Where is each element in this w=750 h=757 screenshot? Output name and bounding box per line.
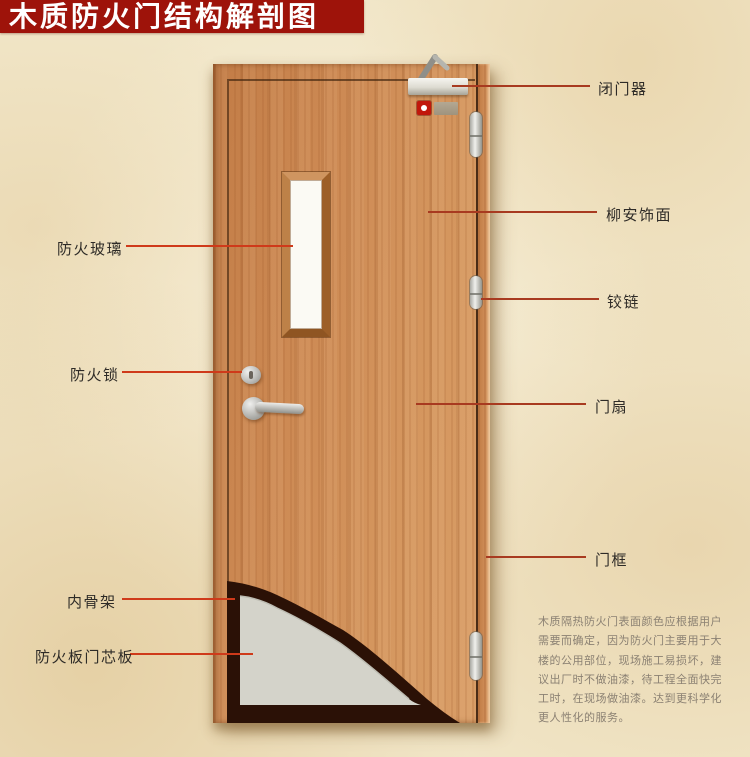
door-cutaway-section <box>213 64 490 723</box>
leader-line-inner-skeleton <box>122 598 235 600</box>
leader-line-door-frame <box>486 556 586 558</box>
fire-door-illustration <box>213 64 490 723</box>
label-door-closer: 闭门器 <box>598 78 648 99</box>
leader-line-fire-lock <box>122 371 242 373</box>
leader-line-door-closer <box>452 85 590 87</box>
fire-board-core-shape <box>240 596 421 705</box>
label-core-board: 防火板门芯板 <box>35 646 134 667</box>
title-banner: 木质防火门结构解剖图 <box>0 0 364 33</box>
label-veneer: 柳安饰面 <box>606 204 672 225</box>
leader-line-hinge <box>481 298 599 300</box>
label-fire-glass: 防火玻璃 <box>57 238 123 259</box>
page-title: 木质防火门结构解剖图 <box>0 0 364 33</box>
product-description: 木质隔热防火门表面颜色应根据用户 需要而确定，因为防火门主要用于大 楼的公用部位… <box>538 612 733 728</box>
label-inner-skeleton: 内骨架 <box>67 591 117 612</box>
leader-line-core-board <box>130 653 253 655</box>
label-door-frame: 门框 <box>595 549 628 570</box>
label-door-leaf: 门扇 <box>595 396 628 417</box>
label-fire-lock: 防火锁 <box>70 364 120 385</box>
leader-line-fire-glass <box>126 245 293 247</box>
label-hinge: 铰链 <box>607 291 640 312</box>
leader-line-door-leaf <box>416 403 586 405</box>
leader-line-veneer <box>428 211 597 213</box>
